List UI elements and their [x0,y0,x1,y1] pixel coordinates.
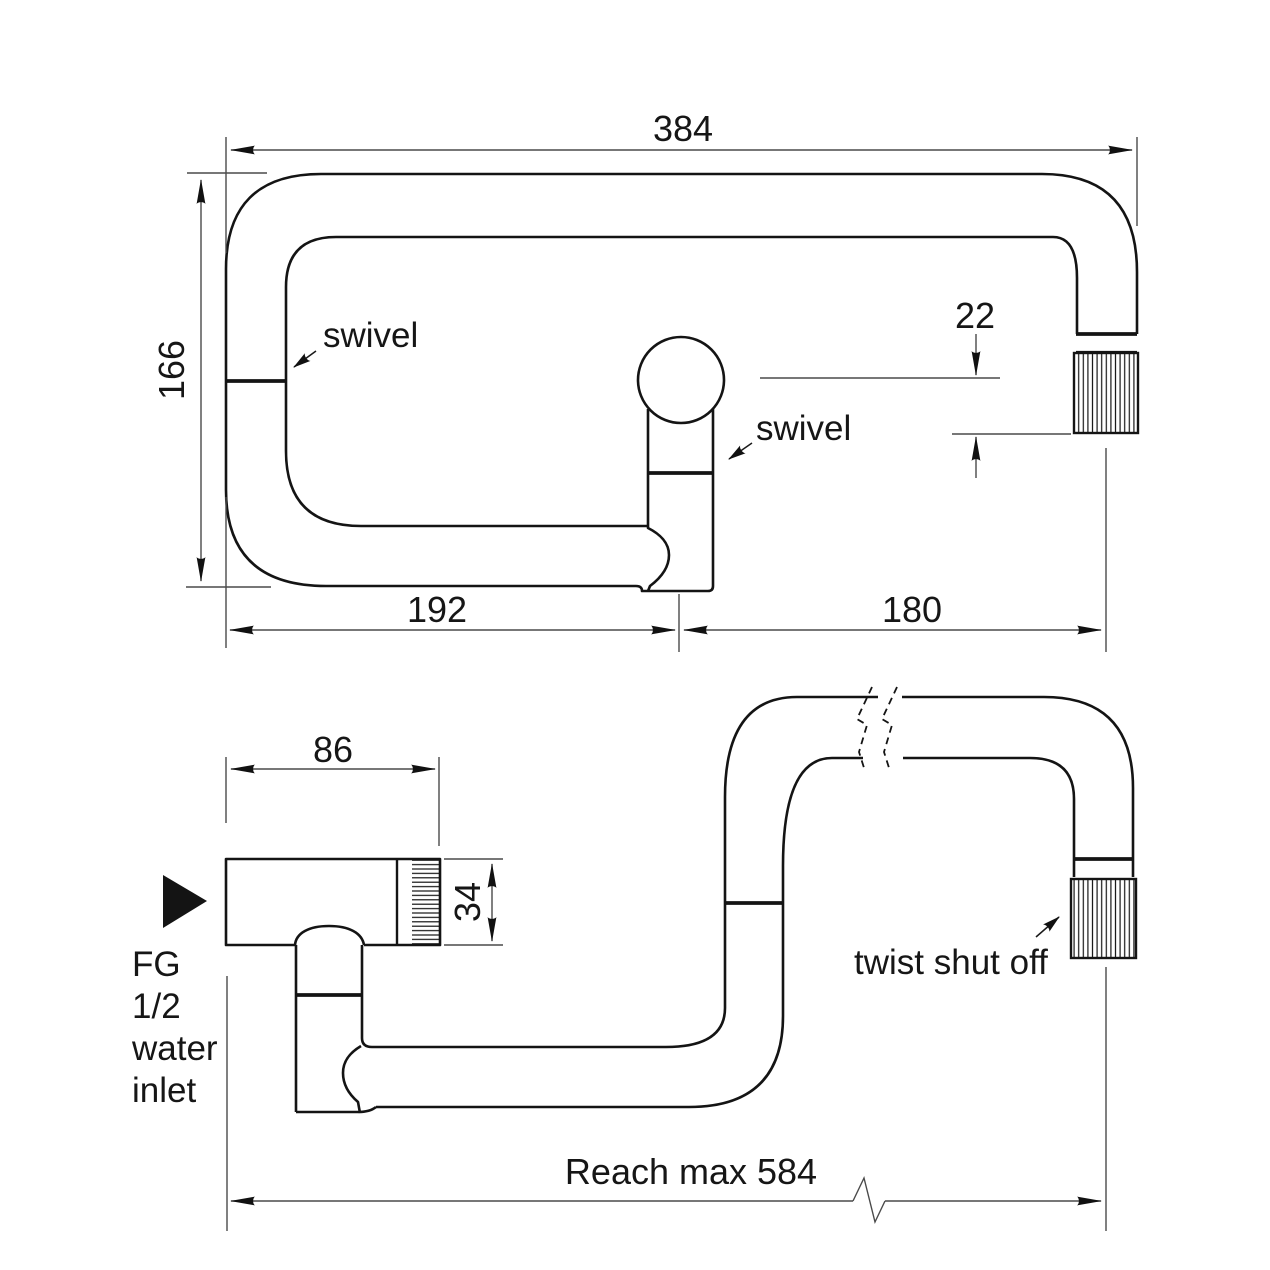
dim-label-180: 180 [882,589,942,630]
top-view: 384 166 192 180 22 [151,108,1138,652]
dim-label-192: 192 [407,589,467,630]
swivel-arm-callout: swivel [294,316,418,367]
inlet-label-line1: FG [132,945,181,984]
dim-label-384: 384 [653,108,713,149]
twist-shut-off-callout: twist shut off [854,917,1059,982]
tube-lower-edge-right [903,758,1074,877]
side-view: FG 1/2 water inlet 86 34 twist shut off [131,687,1136,1231]
shutoff-knurl [1071,879,1136,958]
dimension-left-right-spans: 192 180 [226,448,1106,652]
swivel-arm-label: swivel [323,316,418,355]
stem-dome [295,926,364,945]
pipe-break-symbol [882,687,897,771]
tube-inner-contour [286,237,1077,526]
inlet-label-line2: 1/2 [132,987,181,1026]
swivel-body-callout: swivel [729,409,851,459]
swivel-knob-circle [638,337,724,423]
body-knurl [412,860,439,944]
dim-label-166: 166 [151,340,192,400]
column-left-edge-waist [648,409,669,591]
swivel-body-label: swivel [756,409,851,448]
dimension-spout-offset: 22 [760,295,1071,478]
inlet-body-outline [226,859,440,945]
dimension-total-width: 384 [226,108,1137,253]
dimension-reach: Reach max 584 [227,967,1106,1231]
inlet-label-line4: inlet [132,1071,196,1110]
dim-label-reach: Reach max 584 [565,1151,817,1192]
nozzle-knurl [1074,353,1138,433]
water-inlet-arrow-icon [163,875,207,928]
faucet-technical-drawing: 384 166 192 180 22 [0,0,1270,1270]
tube-upper-edge-left [372,697,878,1047]
dim-label-34: 34 [447,882,488,922]
technical-drawing-page: 384 166 192 180 22 [0,0,1270,1270]
inlet-label: FG 1/2 water inlet [131,945,218,1110]
dimension-body-height: 34 [444,859,503,945]
stem-waist [343,1046,361,1113]
stem-foot [296,1107,376,1112]
twist-shut-off-label: twist shut off [854,943,1048,982]
dimension-body-length: 86 [226,729,439,846]
inlet-label-line3: water [131,1029,218,1068]
tube-upper-edge-right [902,697,1133,877]
stem-right-edge [362,945,372,1047]
dim-label-22: 22 [955,295,995,336]
tube-lower-edge-left [376,758,863,1107]
dim-label-86: 86 [313,729,353,770]
